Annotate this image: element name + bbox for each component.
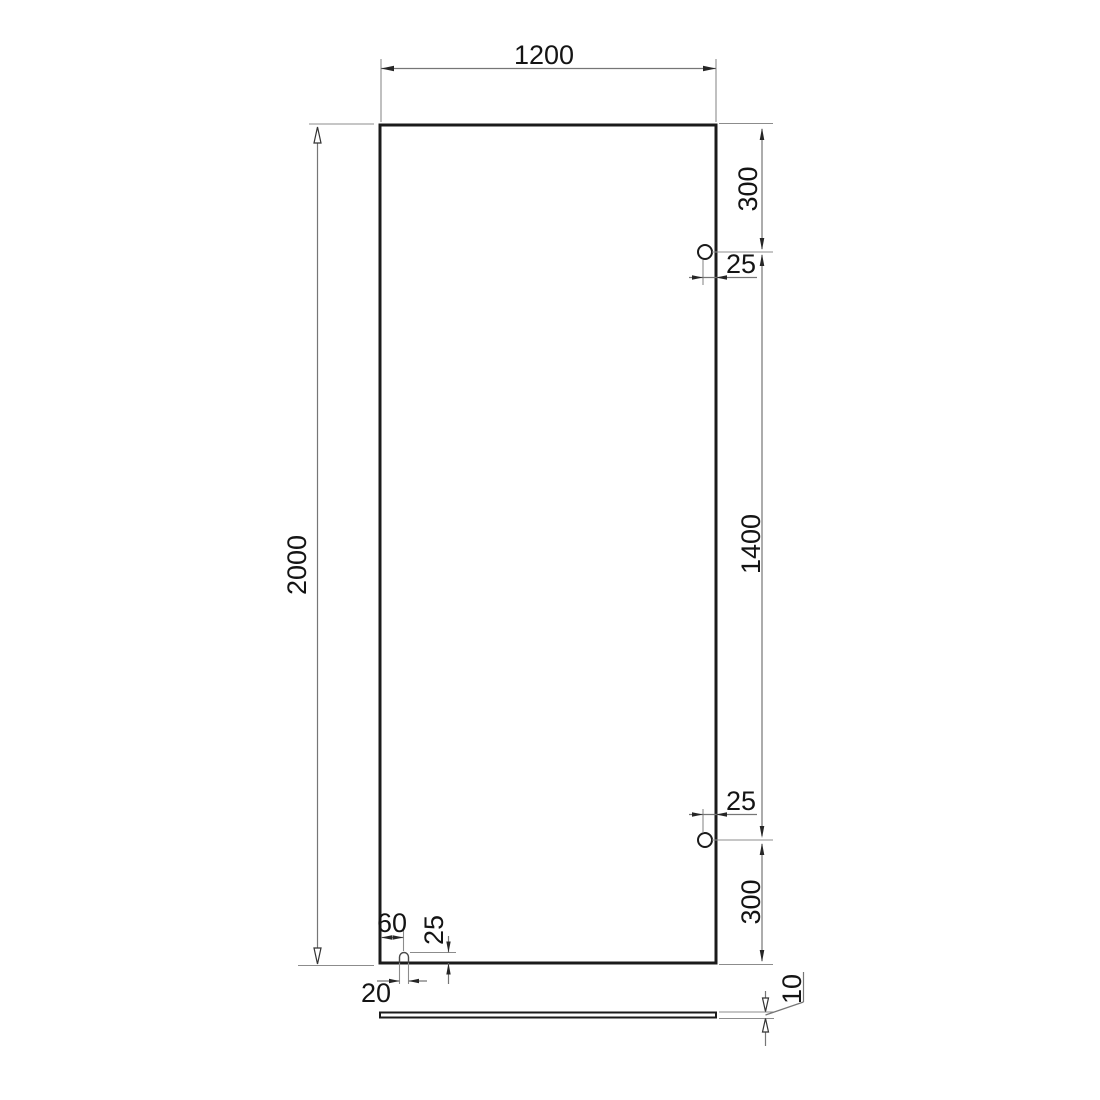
dim-notch-width: 20 [361, 963, 427, 1008]
dim-label-hole-top-edge-distance: 25 [726, 249, 756, 279]
panel-outline [380, 125, 716, 963]
dim-label-panel-width: 1200 [514, 40, 574, 70]
dim-hole-bottom-offset: 300 [712, 840, 773, 965]
dim-panel-width: 1200 [381, 40, 716, 122]
technical-drawing: 1200 2000 300 1400 300 25 [0, 0, 1100, 1100]
dim-label-panel-thickness: 10 [777, 974, 807, 1004]
drawing-canvas: 1200 2000 300 1400 300 25 [0, 0, 1100, 1100]
top-hole [698, 245, 712, 259]
dim-label-hole-bottom-edge-distance: 25 [726, 786, 756, 816]
dim-label-hole-spacing: 1400 [736, 514, 766, 574]
dim-label-notch-width: 20 [361, 978, 391, 1008]
dim-label-notch-center-from-edge: 60 [377, 908, 407, 938]
side-view-thickness-bar [380, 1013, 716, 1018]
bottom-hole [698, 833, 712, 847]
panel-side-view [380, 1013, 716, 1018]
dim-label-hole-bottom-offset: 300 [736, 879, 766, 924]
dim-label-panel-height: 2000 [282, 535, 312, 595]
dim-panel-thickness: 10 [719, 972, 807, 1046]
dim-label-notch-depth: 25 [419, 915, 449, 945]
dim-hole-spacing: 1400 [736, 254, 766, 838]
dim-label-hole-top-offset: 300 [733, 166, 763, 211]
dim-panel-height: 2000 [282, 124, 374, 966]
panel-front-view [380, 125, 716, 963]
dim-hole-top-offset: 300 [712, 124, 773, 253]
